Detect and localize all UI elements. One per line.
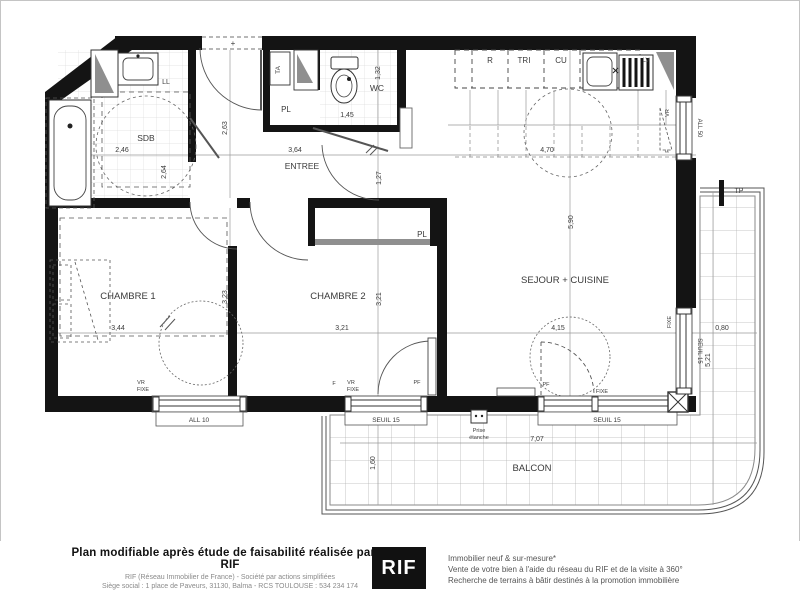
toilet-icon bbox=[331, 57, 358, 103]
corner-cabinet bbox=[656, 52, 674, 90]
room-label-balcon: BALCON bbox=[512, 463, 551, 474]
dim-344: 3,44 bbox=[111, 325, 125, 332]
window-seuil15-vertical bbox=[676, 308, 692, 394]
footer: Plan modifiable après étude de faisabili… bbox=[0, 541, 800, 600]
room-label-entree: ENTREE bbox=[285, 161, 320, 171]
floor-plan-drawing: SDB ENTREE WC CHAMBRE 1 CHAMBRE 2 SEJOUR… bbox=[0, 0, 800, 541]
footer-tagline-2: Vente de votre bien à l'aide du réseau d… bbox=[448, 564, 788, 575]
dim-080: 0,80 bbox=[715, 325, 729, 332]
tag-fixe-4: FIXE bbox=[667, 316, 673, 329]
break-marks bbox=[160, 145, 378, 330]
dim-590: 5,90 bbox=[568, 215, 575, 229]
dim-521: 5,21 bbox=[705, 353, 712, 367]
room-label-wc: WC bbox=[370, 83, 384, 93]
dim-263: 2,63 bbox=[222, 121, 229, 135]
entry-door-arc bbox=[200, 48, 262, 110]
window-label-seuil15-v: SEUIL 15 bbox=[696, 338, 702, 364]
tag-lv: LV bbox=[643, 58, 650, 64]
dim-323: 3,23 bbox=[222, 290, 229, 304]
tag-fixe-2: FIXE bbox=[347, 387, 360, 393]
tag-ta: TA bbox=[275, 65, 282, 73]
dim-127: 1,27 bbox=[376, 171, 383, 185]
kitchen-lower-units bbox=[455, 126, 676, 157]
room-label-sejour: SEJOUR + CUISINE bbox=[521, 275, 609, 286]
kitchen-sink-icon bbox=[583, 53, 618, 90]
washbasin-icon bbox=[118, 53, 158, 85]
closet-shelf bbox=[315, 239, 430, 245]
socket-icon bbox=[471, 410, 487, 423]
tag-f-2: F bbox=[665, 149, 671, 153]
dim-321h: 3,21 bbox=[335, 325, 349, 332]
tag-vr-3: VR bbox=[665, 109, 671, 117]
bathtub-icon bbox=[46, 98, 94, 208]
footer-company-line: RIF (Réseau Immobilier de France) - Soci… bbox=[70, 573, 390, 582]
tag-pf-2: PF bbox=[542, 382, 550, 388]
dim-132: 1,32 bbox=[375, 66, 382, 80]
room-label-pl1: PL bbox=[281, 105, 291, 114]
footer-left-block: Plan modifiable après étude de faisabili… bbox=[70, 547, 390, 591]
footer-tagline-3: Recherche de terrains à bâtir destinés à… bbox=[448, 575, 788, 586]
label-prise-1: Prise bbox=[473, 428, 486, 434]
dim-160: 1,60 bbox=[370, 456, 377, 470]
dim-145: 1,45 bbox=[340, 112, 354, 119]
dim-321v: 3,21 bbox=[376, 292, 383, 306]
label-prise-2: étanche bbox=[469, 435, 489, 441]
room-label-chambre2: CHAMBRE 2 bbox=[310, 291, 365, 302]
tag-fixe-3: FIXE bbox=[596, 389, 609, 395]
tag-plus: + bbox=[231, 39, 236, 48]
dim-707: 7,07 bbox=[530, 436, 544, 443]
tag-vr-1: VR bbox=[137, 380, 145, 386]
tag-tri: TRI bbox=[518, 56, 531, 65]
window-label-all50: ALL 50 bbox=[696, 119, 702, 138]
room-label-sdb: SDB bbox=[137, 133, 155, 143]
dim-470: 4,70 bbox=[540, 147, 554, 154]
footer-right-block: Immobilier neuf & sur-mesure* Vente de v… bbox=[448, 553, 788, 586]
footer-title: Plan modifiable après étude de faisabili… bbox=[70, 547, 390, 571]
dim-264: 2,64 bbox=[161, 165, 168, 179]
tag-pf-1: PF bbox=[413, 380, 421, 386]
tag-tp: TP bbox=[735, 188, 744, 195]
room-label-pl2: PL bbox=[417, 230, 427, 239]
tag-cu: CU bbox=[555, 56, 567, 65]
floor-plan-page: SDB ENTREE WC CHAMBRE 1 CHAMBRE 2 SEJOUR… bbox=[0, 0, 800, 600]
tag-fixe-1: FIXE bbox=[137, 387, 150, 393]
window-label-seuil15-c: SEUIL 15 bbox=[372, 417, 400, 424]
tag-f-1: F bbox=[332, 381, 336, 387]
dim-415: 4,15 bbox=[551, 325, 565, 332]
footer-address-line: Siège social : 1 place de Paveurs, 31130… bbox=[70, 582, 390, 591]
rif-logo: RIF bbox=[372, 547, 426, 589]
chambre2-upper-door-arc bbox=[250, 202, 308, 260]
sejour-door-arc bbox=[322, 145, 379, 200]
footer-tagline-1: Immobilier neuf & sur-mesure* bbox=[448, 553, 788, 564]
tag-ll: LL bbox=[162, 79, 170, 86]
tag-r: R bbox=[487, 56, 493, 65]
dim-246: 2,46 bbox=[115, 147, 129, 154]
kitchen-counter bbox=[448, 90, 676, 125]
chambre2-door-arc bbox=[378, 341, 430, 394]
window-label-all10: ALL 10 bbox=[189, 417, 210, 424]
room-label-chambre1: CHAMBRE 1 bbox=[100, 291, 155, 302]
tp-post bbox=[719, 180, 724, 206]
tag-vr-2: VR bbox=[347, 380, 355, 386]
shower-icon bbox=[91, 50, 118, 97]
dim-364: 3,64 bbox=[288, 147, 302, 154]
window-label-seuil15-r: SEUIL 15 bbox=[593, 417, 621, 424]
